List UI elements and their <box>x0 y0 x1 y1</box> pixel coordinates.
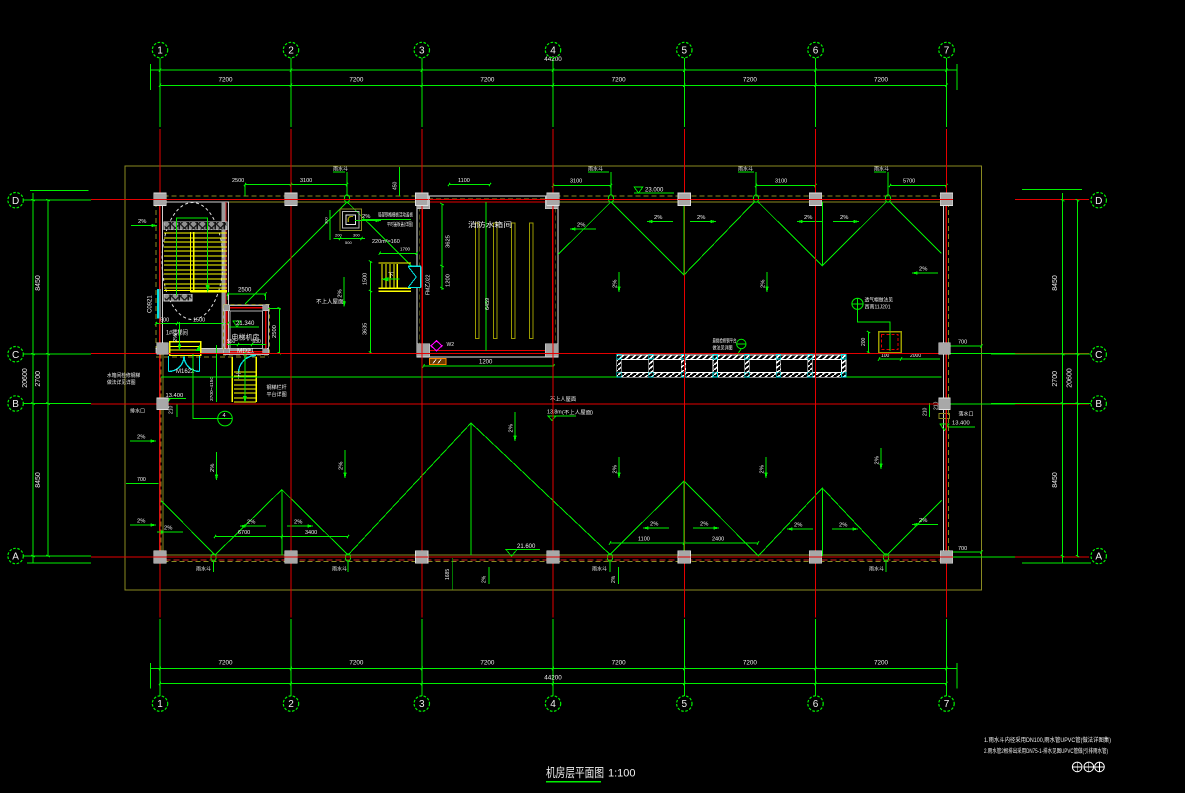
svg-text:5: 5 <box>682 46 688 57</box>
svg-text:6: 6 <box>813 46 819 57</box>
svg-text:C0921: C0921 <box>148 295 154 313</box>
svg-text:550: 550 <box>227 339 236 345</box>
svg-text:A: A <box>12 552 19 563</box>
svg-text:6459: 6459 <box>485 298 491 310</box>
svg-text:300: 300 <box>324 217 329 224</box>
svg-text:700: 700 <box>137 477 146 483</box>
svg-text:1: 1 <box>157 699 163 710</box>
svg-text:2%: 2% <box>210 464 216 472</box>
svg-text:300: 300 <box>353 233 360 238</box>
svg-text:2%: 2% <box>919 267 927 273</box>
svg-text:200: 200 <box>861 337 867 346</box>
svg-text:平台详图: 平台详图 <box>267 390 287 398</box>
svg-text:雨水斗: 雨水斗 <box>592 565 607 573</box>
svg-text:1700: 1700 <box>400 247 411 252</box>
svg-text:1100: 1100 <box>458 178 470 184</box>
svg-text:做法见详图: 做法见详图 <box>713 345 733 352</box>
svg-text:8450: 8450 <box>1052 472 1059 488</box>
svg-text:1685: 1685 <box>445 569 451 580</box>
svg-text:21.340: 21.340 <box>236 321 255 327</box>
svg-text:7200: 7200 <box>480 77 495 84</box>
svg-text:8450: 8450 <box>35 472 42 488</box>
svg-text:2%: 2% <box>650 522 658 528</box>
svg-text:2%: 2% <box>173 334 179 342</box>
svg-text:2700: 2700 <box>1052 371 1059 387</box>
svg-text:2%: 2% <box>138 219 146 225</box>
svg-text:4: 4 <box>550 699 556 710</box>
svg-text:20600: 20600 <box>1067 368 1074 388</box>
svg-text:7: 7 <box>944 699 950 710</box>
svg-text:2%: 2% <box>697 215 705 221</box>
svg-text:2: 2 <box>288 46 294 57</box>
svg-text:2%: 2% <box>919 518 927 524</box>
svg-text:雨水斗: 雨水斗 <box>738 165 753 173</box>
svg-text:A: A <box>1095 552 1102 563</box>
svg-text:D: D <box>1095 196 1102 207</box>
svg-text:1200: 1200 <box>446 274 452 287</box>
svg-text:2%: 2% <box>613 280 619 288</box>
svg-text:2%: 2% <box>611 575 617 583</box>
svg-text:7200: 7200 <box>612 77 627 84</box>
svg-text:1: 1 <box>157 46 163 57</box>
svg-text:2%: 2% <box>700 522 708 528</box>
svg-text:2%: 2% <box>804 215 812 221</box>
svg-text:8450: 8450 <box>35 275 42 291</box>
svg-text:2%: 2% <box>654 215 662 221</box>
svg-text:2%: 2% <box>760 465 766 473</box>
svg-text:3100: 3100 <box>775 179 787 185</box>
svg-text:2500: 2500 <box>232 178 244 184</box>
svg-text:7200: 7200 <box>218 660 233 667</box>
svg-text:2%: 2% <box>761 280 767 288</box>
svg-text:3100: 3100 <box>300 178 312 184</box>
svg-text:做法详见详图: 做法详见详图 <box>107 379 136 386</box>
svg-text:3: 3 <box>419 699 425 710</box>
svg-text:1500: 1500 <box>193 318 205 324</box>
svg-text:13.8m: 13.8m <box>547 410 562 416</box>
svg-text:不上人屋面: 不上人屋面 <box>316 298 344 306</box>
svg-text:悬挑检修钢平台: 悬挑检修钢平台 <box>713 338 737 345</box>
svg-text:3625: 3625 <box>446 235 452 248</box>
svg-text:排水口: 排水口 <box>130 407 145 415</box>
svg-text:2%: 2% <box>164 526 172 532</box>
svg-text:5700: 5700 <box>903 179 915 185</box>
svg-text:7200: 7200 <box>218 77 233 84</box>
svg-text:局部钢格栅板活动盖板: 局部钢格栅板活动盖板 <box>378 212 413 219</box>
svg-text:机房层平面图: 机房层平面图 <box>546 765 604 780</box>
svg-text:7200: 7200 <box>743 77 758 84</box>
svg-text:7200: 7200 <box>874 77 889 84</box>
svg-text:雨水斗: 雨水斗 <box>333 165 348 173</box>
svg-text:2%: 2% <box>839 523 847 529</box>
svg-text:4: 4 <box>223 413 226 419</box>
svg-text:600: 600 <box>160 318 169 324</box>
svg-text:平时盖板盖(详图): 平时盖板盖(详图) <box>387 221 413 228</box>
svg-text:D: D <box>12 196 19 207</box>
svg-text:23.000: 23.000 <box>645 188 664 194</box>
svg-text:2%: 2% <box>362 214 370 220</box>
svg-text:6: 6 <box>813 699 819 710</box>
svg-text:7200: 7200 <box>612 660 627 667</box>
svg-text:700: 700 <box>958 546 967 552</box>
svg-text:210: 210 <box>169 405 175 414</box>
svg-text:雨水斗: 雨水斗 <box>869 565 884 573</box>
svg-text:7: 7 <box>944 46 950 57</box>
svg-text:500: 500 <box>345 240 352 245</box>
svg-text:7200: 7200 <box>480 660 495 667</box>
svg-text:2500: 2500 <box>272 325 278 338</box>
svg-text:200: 200 <box>335 233 342 238</box>
svg-text:2400: 2400 <box>712 537 724 543</box>
svg-text:雨水斗: 雨水斗 <box>588 165 603 173</box>
svg-text:雨水斗: 雨水斗 <box>874 165 889 173</box>
svg-text:雨水斗: 雨水斗 <box>332 565 347 573</box>
svg-text:2.雨水管2根排出采用DN75-1-排水见图UPVC管做(引: 2.雨水管2根排出采用DN75-1-排水见图UPVC管做(引排雨水管) <box>984 747 1108 755</box>
svg-text:210: 210 <box>923 407 929 416</box>
svg-text:2%: 2% <box>294 520 302 526</box>
svg-text:2%: 2% <box>875 456 881 464</box>
svg-text:7200: 7200 <box>349 660 364 667</box>
svg-text:FM乙022: FM乙022 <box>425 275 432 295</box>
svg-text:44200: 44200 <box>544 675 562 682</box>
svg-text:不上人屋面: 不上人屋面 <box>550 395 577 403</box>
svg-text:2700: 2700 <box>35 371 42 387</box>
svg-text:7200: 7200 <box>349 77 364 84</box>
svg-text:透气帽做法见: 透气帽做法见 <box>865 297 894 304</box>
svg-text:2%: 2% <box>509 424 515 432</box>
svg-text:B: B <box>1095 399 1102 410</box>
svg-text:2%: 2% <box>840 215 848 221</box>
svg-text:21.600: 21.600 <box>517 544 536 550</box>
svg-text:2%: 2% <box>482 575 488 583</box>
svg-text:W2: W2 <box>447 342 455 348</box>
svg-text:650: 650 <box>253 339 262 345</box>
svg-text:1500: 1500 <box>363 273 369 285</box>
svg-text:2%: 2% <box>577 223 585 229</box>
svg-text:2%: 2% <box>338 289 344 297</box>
svg-text:2: 2 <box>288 699 294 710</box>
svg-text:(不上人屋面): (不上人屋面) <box>562 408 593 416</box>
svg-text:220m²≈160: 220m²≈160 <box>372 239 400 245</box>
svg-text:4: 4 <box>550 46 556 57</box>
svg-text:700: 700 <box>958 340 967 346</box>
svg-text:2%: 2% <box>137 519 145 525</box>
svg-text:2%: 2% <box>613 465 619 473</box>
svg-text:C: C <box>1095 350 1102 361</box>
svg-text:1200: 1200 <box>479 360 493 366</box>
svg-text:C: C <box>12 350 19 361</box>
svg-text:水箱间检修钢梯: 水箱间检修钢梯 <box>107 372 140 379</box>
svg-text:3635: 3635 <box>363 323 369 335</box>
svg-text:2500: 2500 <box>238 288 252 294</box>
svg-text:3700~4150: 3700~4150 <box>209 377 215 401</box>
svg-text:钢梯栏杆: 钢梯栏杆 <box>267 383 288 391</box>
svg-text:450: 450 <box>393 181 399 190</box>
svg-text:1:100: 1:100 <box>608 768 636 780</box>
svg-text:B: B <box>12 399 19 410</box>
svg-text:20600: 20600 <box>22 368 29 388</box>
svg-text:雨水斗: 雨水斗 <box>196 565 211 573</box>
svg-text:3400: 3400 <box>305 530 317 536</box>
svg-text:13.400: 13.400 <box>952 421 970 427</box>
svg-text:1100: 1100 <box>638 537 650 543</box>
svg-text:落水口: 落水口 <box>959 410 974 418</box>
svg-text:M1622: M1622 <box>176 369 195 375</box>
svg-text:2%: 2% <box>247 520 255 526</box>
svg-text:44200: 44200 <box>544 56 562 63</box>
svg-text:2%: 2% <box>137 435 145 441</box>
svg-text:2%: 2% <box>339 462 345 470</box>
svg-text:1.雨水斗内径采用DN100,雨水管UPVC管(做法详图集): 1.雨水斗内径采用DN100,雨水管UPVC管(做法详图集) <box>984 736 1111 744</box>
svg-text:8450: 8450 <box>1052 275 1059 291</box>
svg-text:5: 5 <box>682 699 688 710</box>
svg-text:消防水箱间: 消防水箱间 <box>468 220 512 229</box>
svg-text:2%: 2% <box>794 523 802 529</box>
svg-text:6700: 6700 <box>238 530 250 536</box>
svg-text:3: 3 <box>419 46 425 57</box>
svg-text:下: 下 <box>388 273 394 280</box>
svg-text:7200: 7200 <box>743 660 758 667</box>
svg-text:7200: 7200 <box>874 660 889 667</box>
svg-text:3100: 3100 <box>570 179 582 185</box>
svg-text:西南11J201: 西南11J201 <box>865 304 891 311</box>
